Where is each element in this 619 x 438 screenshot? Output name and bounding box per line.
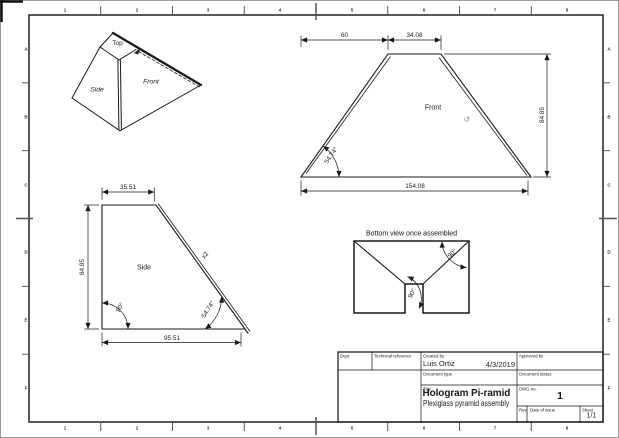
dept-label: Dept. bbox=[340, 354, 350, 358]
row-label-right: B bbox=[607, 114, 610, 119]
pictorial-top-label: Top bbox=[112, 41, 122, 48]
document-type-label: Document type bbox=[423, 372, 452, 376]
created-by-value: Luis Ortiz bbox=[423, 360, 455, 368]
column-label-top: 1 bbox=[64, 7, 67, 12]
row-label-right: D bbox=[607, 250, 610, 255]
front-dim-offset: 60 bbox=[341, 33, 348, 39]
orbit-cursor-icon: ↺ bbox=[464, 116, 471, 124]
approved-by-label: Approved by bbox=[519, 354, 543, 358]
pictorial-front-label: Front bbox=[143, 79, 159, 86]
column-label-top: 5 bbox=[351, 7, 354, 12]
corner-edge-right-line bbox=[120, 60, 121, 130]
pictorial-view bbox=[72, 33, 201, 131]
column-label-bottom: 1 bbox=[64, 425, 67, 430]
pictorial-side-label: Side bbox=[90, 88, 104, 95]
technical-reference-label: Technical reference bbox=[374, 354, 411, 358]
side-panel-view bbox=[84, 188, 250, 347]
row-label-right: A bbox=[607, 47, 610, 52]
row-label-left: F bbox=[24, 386, 27, 391]
side-view-label: Side bbox=[137, 265, 151, 272]
row-label-left: A bbox=[24, 47, 27, 52]
column-label-bottom: 8 bbox=[566, 425, 569, 430]
trim-mark bbox=[0, 0, 23, 22]
title-block-outline bbox=[338, 352, 603, 422]
column-label-top: 2 bbox=[135, 7, 138, 12]
created-by-label: Created by bbox=[423, 354, 444, 358]
front-face-bottom-edge bbox=[120, 85, 201, 131]
front-dim-top: 34.08 bbox=[407, 32, 423, 38]
front-dim-bottom: 154.08 bbox=[405, 184, 425, 190]
column-label-bottom: 4 bbox=[279, 425, 282, 430]
front-view-label: Front bbox=[425, 105, 441, 112]
row-label-right: C bbox=[607, 182, 610, 187]
column-label-top: 8 bbox=[566, 7, 569, 12]
side-dim-bottom: 95.51 bbox=[164, 335, 180, 341]
side-face-bottom-edge bbox=[72, 98, 120, 131]
fold-diagonal-left bbox=[354, 241, 405, 284]
drawing-sheet: 1 2 3 4 5 6 7 8 1 2 3 4 5 6 7 8 A B C D … bbox=[0, 0, 619, 438]
side-dim-top: 35.51 bbox=[120, 185, 136, 191]
row-label-left: C bbox=[24, 182, 27, 187]
column-label-bottom: 6 bbox=[422, 425, 425, 430]
top-face-right-edge bbox=[119, 50, 136, 61]
drawing-title: Hologram Pi-ramid bbox=[423, 389, 511, 399]
row-label-left: B bbox=[24, 114, 27, 119]
drawing-subtitle: Plexiglass pyramid assembly bbox=[423, 400, 509, 408]
top-face-edge bbox=[100, 33, 113, 47]
title-block-grid bbox=[338, 352, 603, 422]
side-panel-outline bbox=[102, 205, 245, 329]
hypotenuse-tail bbox=[245, 329, 248, 334]
column-label-top: 4 bbox=[279, 7, 282, 12]
row-label-right: E bbox=[607, 318, 610, 323]
fold-diagonal-right bbox=[423, 241, 469, 284]
front-panel-outline bbox=[301, 54, 531, 177]
document-status-label: Document status bbox=[519, 372, 551, 376]
bottom-view-caption: Bottom view once assembled bbox=[366, 230, 457, 237]
title-block-inner-lines bbox=[338, 352, 603, 422]
corner-edge-left-line bbox=[118, 60, 119, 130]
sheet-value: 1/1 bbox=[587, 412, 597, 419]
row-label-left: E bbox=[24, 318, 27, 323]
row-label-left: D bbox=[24, 250, 27, 255]
column-label-bottom: 5 bbox=[351, 425, 354, 430]
date-created-value: 4/3/2019 bbox=[486, 361, 515, 369]
row-label-right: F bbox=[607, 386, 610, 391]
top-face-front-edge bbox=[100, 47, 119, 60]
rev-label: Rev. bbox=[519, 408, 528, 412]
side-dim-height: 84.85 bbox=[80, 259, 86, 275]
dwg-no-value: 1 bbox=[557, 390, 563, 401]
front-dim-height: 84.85 bbox=[539, 107, 545, 123]
dwg-no-label: DWG no. bbox=[519, 387, 537, 391]
front-panel-view bbox=[301, 36, 551, 196]
date-of-issue-label: Date of issue bbox=[530, 408, 555, 412]
column-label-bottom: 2 bbox=[135, 425, 138, 430]
column-label-top: 6 bbox=[422, 7, 425, 12]
edge-junction-mark bbox=[134, 48, 141, 55]
